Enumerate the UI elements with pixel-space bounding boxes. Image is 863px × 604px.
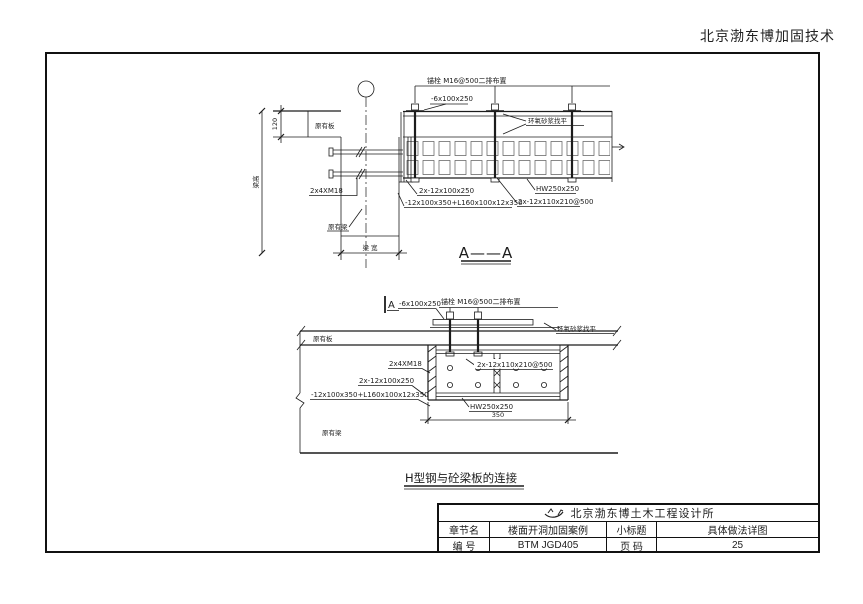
number-value: BTM JGD405 [489,538,606,553]
number-label: 编 号 [439,538,489,553]
subtitle-value: 具体做法详图 [656,522,818,537]
plate-label-b: -6x100x250 [399,300,441,308]
dim-350: 350 [492,411,504,419]
section-title-a-a: A——A [459,244,514,262]
double-plate-label-a: 2x-12x100x250 [419,187,474,195]
plate-label-a: -6x100x250 [431,95,473,103]
detail-title: H型钢与砼梁板的连接 [405,471,518,485]
subtitle-label: 小标题 [606,522,656,537]
existing-beam-label-b: 原有梁 [322,428,342,437]
epoxy-label-b: 环氧砂浆找平 [557,324,597,333]
dim-beam-height: 梁高 [251,175,260,189]
anchor-note-label-b: 锚栓 M16@500二排布置 [441,297,521,306]
company-name: 北京渤东博土木工程设计所 [571,505,715,521]
epoxy-label-a: 环氧砂浆找平 [528,116,568,125]
chapter-value: 楼面开洞加固案例 [489,522,606,537]
company-logo-icon [543,507,565,519]
hsteel-label-a: HW250x250 [536,185,579,193]
title-block-row-chapter: 章节名 楼面开洞加固案例 小标题 具体做法详图 [439,521,818,537]
title-block: 北京渤东博土木工程设计所 章节名 楼面开洞加固案例 小标题 具体做法详图 编 号… [437,503,820,553]
title-block-company-row: 北京渤东博土木工程设计所 [439,505,818,521]
angle-label-b: -12x100x350+L160x100x12x350 [311,391,429,399]
double-plate-label-b: 2x-12x100x250 [359,377,414,385]
detail-section-a-a [259,81,624,268]
anchor-note-label-a: 锚栓 M16@500二排布置 [427,76,507,85]
existing-slab-label-b: 原有板 [313,334,333,343]
dim-120: 120 [271,118,279,130]
batten-label-b: 2x-12x110x210@500 [477,361,552,369]
dim-beam-width: 梁 宽 [362,243,378,252]
drawing-page: 北京渤东博加固技术 [0,0,863,604]
page-label: 页 码 [606,538,656,553]
existing-beam-label-a: 原有梁 [328,222,348,231]
hsteel-label-b: HW250x250 [470,403,513,411]
batten-label-a: 2x-12x110x210@500 [518,198,593,206]
bolts-label-a: 2x4XM18 [310,187,343,195]
page-value: 25 [656,538,818,553]
angle-label-a: -12x100x350+L160x100x12x350 [405,199,523,207]
bolts-label-b: 2x4XM18 [389,360,422,368]
existing-slab-label-a: 原有板 [315,121,335,130]
chapter-label: 章节名 [439,522,489,537]
section-marker-a: A [388,300,395,311]
title-block-row-number: 编 号 BTM JGD405 页 码 25 [439,537,818,553]
